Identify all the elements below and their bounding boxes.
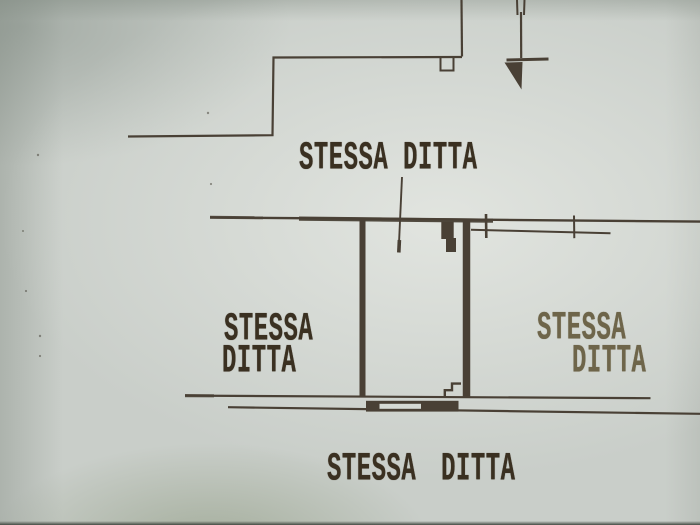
survey-marker-tick-right <box>524 0 525 15</box>
survey-marker-crossbar <box>507 59 549 60</box>
dust-specks <box>22 112 212 357</box>
upper-boundary-line <box>128 57 462 137</box>
top-vertical-line <box>462 0 463 57</box>
label-stessa-ditta-left-line2: DITTA <box>222 342 296 382</box>
bottom-boundary-upper-line <box>185 396 651 399</box>
bottom-boundary-lower-line <box>228 407 700 414</box>
middle-boundary-start-thick <box>210 217 263 218</box>
label-stessa-ditta-bottom: STESSA DITTA <box>327 450 516 490</box>
survey-marker-arrowhead <box>505 62 523 90</box>
label-stessa-ditta-right-line2: DITTA <box>572 342 646 382</box>
survey-marker-tick-left <box>517 0 518 15</box>
bottom-step-detail <box>445 384 461 398</box>
door-notch <box>441 58 454 71</box>
center-tick-foot <box>399 240 400 253</box>
door-jamb-foot <box>446 238 456 252</box>
label-stessa-ditta-top: STESSA DITTA <box>299 139 477 179</box>
right-parallel-line <box>471 230 611 233</box>
door-jamb-block <box>441 222 453 240</box>
scanned-plan-page: STESSA DITTA STESSA DITTA STESSA DITTA S… <box>0 0 700 525</box>
threshold-opening <box>380 404 422 409</box>
scan-bottom-edge <box>0 521 700 525</box>
